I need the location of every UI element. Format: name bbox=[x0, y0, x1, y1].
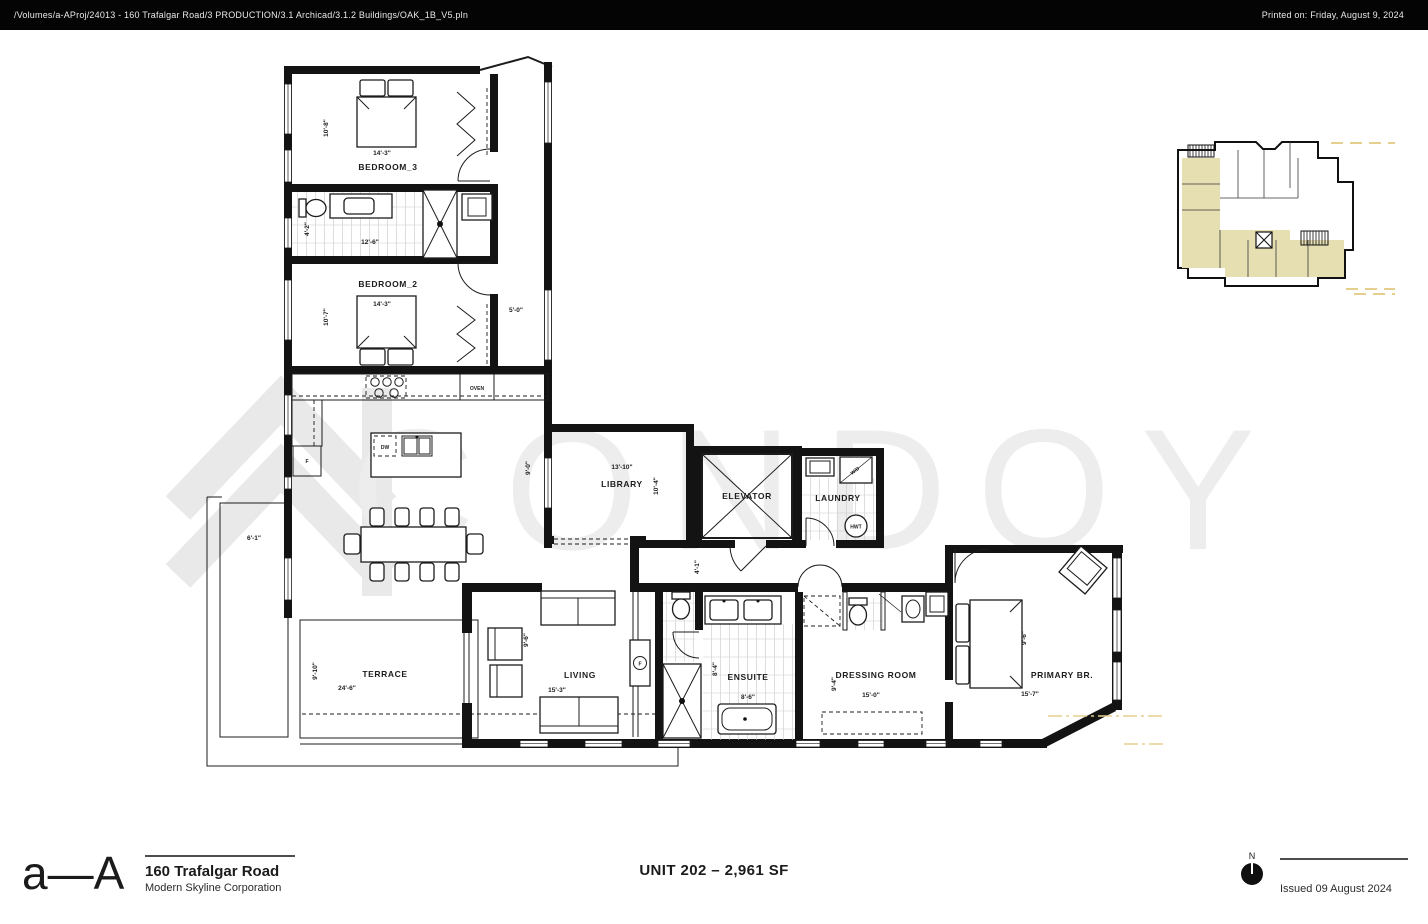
keyplan-stair-icon bbox=[1301, 231, 1328, 245]
bedroom3-dim-w: 14'-3" bbox=[373, 150, 391, 157]
fireplace-label: F bbox=[638, 662, 641, 668]
divider bbox=[145, 855, 295, 857]
library-label: LIBRARY bbox=[601, 479, 643, 489]
bedroom2-dim-h: 10'-7" bbox=[323, 308, 330, 326]
north-arrow: N bbox=[1238, 851, 1266, 885]
oven-label: OVEN bbox=[470, 386, 485, 392]
primary-label: PRIMARY BR. bbox=[1031, 670, 1093, 680]
floor-plan-canvas: CONDOY 6'-1" TERRACE 24'-6" 9'-10" bbox=[0, 0, 1428, 924]
project-name: 160 Trafalgar Road bbox=[145, 863, 315, 880]
dressing-label: DRESSING ROOM bbox=[835, 670, 916, 680]
living-dim-w: 15'-3" bbox=[548, 687, 566, 694]
terrace-dim-w: 24'-6" bbox=[338, 685, 356, 692]
corridor-dim: 5'-0" bbox=[509, 307, 523, 314]
laundry-label: LAUNDRY bbox=[815, 493, 860, 503]
bedroom3-label: BEDROOM_3 bbox=[358, 162, 417, 172]
planter-dim: 6'-1" bbox=[247, 535, 261, 542]
bathroom2-dim-w: 12'-6" bbox=[361, 239, 379, 246]
project-block: 160 Trafalgar Road Modern Skyline Corpor… bbox=[145, 855, 315, 894]
ensuite-dim-h: 8'-4" bbox=[712, 662, 719, 676]
divider bbox=[1280, 858, 1408, 860]
bathroom2-dim-h: 4'-2" bbox=[304, 222, 311, 236]
bedroom2-dim-w: 14'-3" bbox=[373, 301, 391, 308]
issued-block: Issued 09 August 2024 bbox=[1280, 858, 1410, 895]
bedroom3-room: 14'-3" BEDROOM_3 10'-8" bbox=[323, 80, 490, 181]
dishwasher-label: DW bbox=[381, 445, 390, 451]
living-label: LIVING bbox=[564, 670, 596, 680]
sheet: /Volumes/a-AProj/24013 - 160 Trafalgar R… bbox=[0, 0, 1428, 924]
developer-name: Modern Skyline Corporation bbox=[145, 882, 315, 894]
dressing-dim-h: 9'-4" bbox=[831, 677, 838, 691]
kitchen-dim-h: 9'-0" bbox=[525, 461, 532, 475]
issued-date: Issued 09 August 2024 bbox=[1280, 883, 1410, 895]
terrace-label: TERRACE bbox=[362, 669, 407, 679]
bedroom3-dim-h: 10'-8" bbox=[323, 119, 330, 137]
primary-dim-w: 15'-7" bbox=[1021, 691, 1039, 698]
primary-bed-dim: 9'-6" bbox=[1021, 631, 1028, 645]
terrace-tiles bbox=[300, 620, 478, 738]
ensuite-room: ENSUITE 8'-6" 8'-4" bbox=[663, 592, 795, 740]
key-plan bbox=[1178, 142, 1395, 294]
north-label: N bbox=[1238, 851, 1266, 861]
ensuite-dim-w: 8'-6" bbox=[741, 694, 755, 701]
terrace-dim-h: 9'-10" bbox=[312, 662, 319, 680]
architect-logo: a—A bbox=[22, 846, 124, 900]
kitchen-island bbox=[371, 433, 461, 477]
bedroom2-label: BEDROOM_2 bbox=[358, 279, 417, 289]
keyplan-stair-icon bbox=[1188, 145, 1214, 157]
living-room: F LIVING 15'-3" 9'-6" bbox=[488, 591, 650, 733]
library-dim-h: 10'-4" bbox=[653, 477, 660, 495]
hall-dim: 4'-1" bbox=[694, 560, 701, 574]
hwt-label: HWT bbox=[850, 525, 861, 531]
living-dim-h: 9'-6" bbox=[523, 633, 530, 647]
dressing-dim-w: 15'-0" bbox=[862, 692, 880, 699]
fridge-label: F bbox=[305, 459, 308, 465]
library-dim-w: 13'-10" bbox=[611, 464, 632, 471]
ensuite-label: ENSUITE bbox=[727, 672, 768, 682]
north-arrow-icon bbox=[1241, 863, 1263, 885]
elevator-label: ELEVATOR bbox=[722, 491, 772, 501]
bathroom2-room: 12'-6" 4'-2" bbox=[292, 190, 492, 258]
unit-title: UNIT 202 – 2,961 SF bbox=[639, 862, 788, 879]
